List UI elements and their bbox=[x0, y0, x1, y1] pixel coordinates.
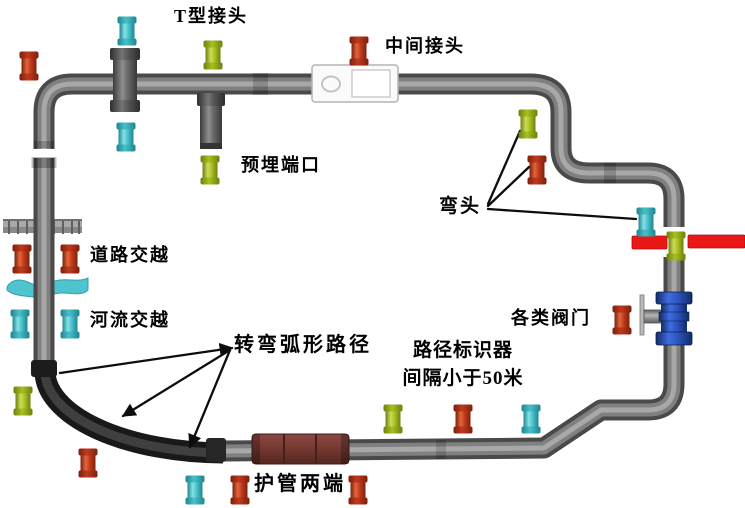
pipe-marker-red bbox=[61, 245, 80, 274]
pipe-marker-green bbox=[667, 232, 686, 261]
pipe-marker-green bbox=[519, 110, 538, 139]
pipe-marker-cyan bbox=[61, 310, 80, 339]
mid-joint-box bbox=[312, 65, 398, 102]
pipe-marker-green bbox=[204, 41, 223, 70]
label-road-cross: 道路交越 bbox=[90, 246, 170, 266]
pipe-marker-green bbox=[201, 156, 220, 185]
pipe-marker-cyan bbox=[118, 17, 137, 46]
t-joint-fitting bbox=[110, 48, 140, 112]
label-river-cross: 河流交越 bbox=[90, 311, 170, 331]
embed-port-branch bbox=[197, 93, 225, 149]
protective-casing bbox=[252, 434, 349, 464]
label-valves: 各类阀门 bbox=[511, 309, 591, 329]
pipe-marker-cyan bbox=[637, 208, 656, 237]
label-arc-path: 转弯弧形路径 bbox=[234, 334, 372, 356]
pipe-marker-cyan bbox=[11, 310, 30, 339]
pipe-marker-red bbox=[79, 449, 98, 478]
pipe-marker-red bbox=[528, 156, 547, 185]
pipe-marker-red bbox=[20, 52, 39, 81]
valve bbox=[640, 292, 692, 345]
pipe-marker-cyan bbox=[186, 476, 205, 505]
pipe-marker-green bbox=[384, 405, 403, 434]
pipe-marker-red bbox=[454, 405, 473, 434]
pointer-lines bbox=[60, 131, 636, 447]
pipe-loop bbox=[44, 84, 674, 453]
road-crossing-right bbox=[632, 235, 745, 249]
label-t-joint: T型接头 bbox=[174, 7, 248, 27]
pipe-marker-red bbox=[349, 476, 368, 505]
label-path-marker-line2: 间隔小于50米 bbox=[388, 365, 538, 393]
pipe-marker-red bbox=[13, 245, 32, 274]
pipe-marker-red bbox=[613, 306, 632, 335]
label-embed-port: 预埋端口 bbox=[241, 156, 321, 176]
label-mid-joint: 中间接头 bbox=[385, 37, 465, 57]
pipe-marker-cyan bbox=[522, 405, 541, 434]
pipe-marker-green bbox=[14, 387, 33, 416]
pipeline-diagram: T型接头 中间接头 预埋端口 弯头 道路交越 河流交越 转弯弧形路径 路径标识器… bbox=[0, 0, 745, 508]
pipe-marker-cyan bbox=[117, 123, 136, 152]
label-path-marker-line1: 路径标识器 bbox=[388, 337, 538, 365]
pipe-marker-red bbox=[231, 476, 250, 505]
label-casing-ends: 护管两端 bbox=[254, 473, 346, 495]
label-elbow: 弯头 bbox=[439, 197, 481, 218]
label-path-marker: 路径标识器 间隔小于50米 bbox=[388, 337, 538, 392]
pipe-marker-red bbox=[350, 37, 369, 66]
